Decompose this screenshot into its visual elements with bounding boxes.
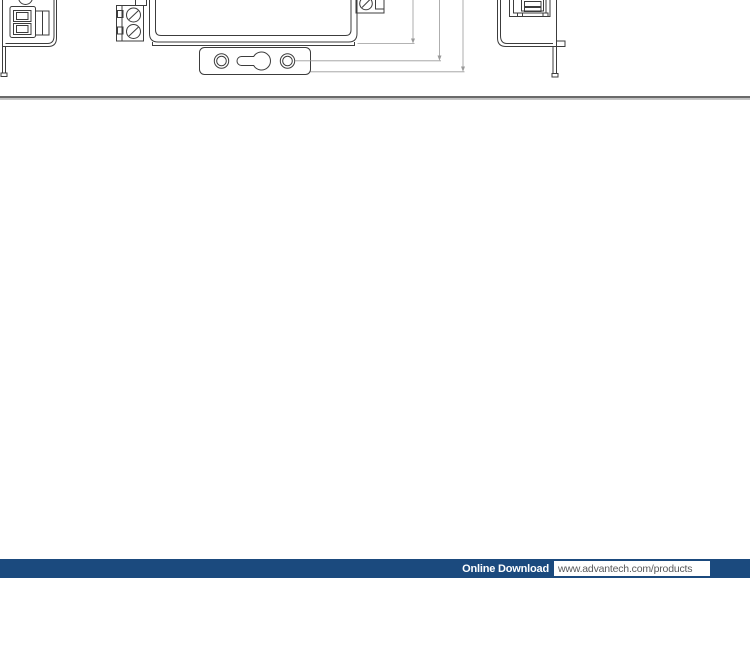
rj45-port-icon [510, 0, 551, 17]
mounting-bracket [200, 48, 311, 75]
terminal-block-left [117, 0, 147, 41]
footer-bar: Online Download www.advantech.com/produc… [0, 559, 750, 578]
terminal-screw-icon [360, 0, 373, 10]
terminal-block-right [356, 0, 384, 13]
dimension-drawing-section [0, 0, 750, 96]
online-download-label: Online Download [462, 563, 549, 575]
dimension-arrow-icon [438, 56, 442, 61]
mount-leg-foot [1, 73, 7, 77]
keyhole-slot-icon [237, 52, 270, 70]
dimension-arrow-icon [411, 39, 415, 44]
section-divider [0, 96, 750, 100]
online-download-url[interactable]: www.advantech.com/products [558, 563, 692, 575]
mount-leg-foot [552, 74, 558, 78]
dimension-drawing [0, 0, 750, 96]
left-side-view-drawing [1, 0, 57, 77]
online-download-url-box[interactable]: www.advantech.com/products [554, 561, 710, 576]
dimension-arrow-icon [461, 67, 465, 72]
bottom-view-drawing [117, 0, 385, 75]
screw-head-icon [19, 0, 33, 5]
terminal-plug [10, 7, 49, 38]
datasheet-page: Online Download www.advantech.com/produc… [0, 0, 750, 650]
right-side-view-drawing [498, 0, 566, 77]
